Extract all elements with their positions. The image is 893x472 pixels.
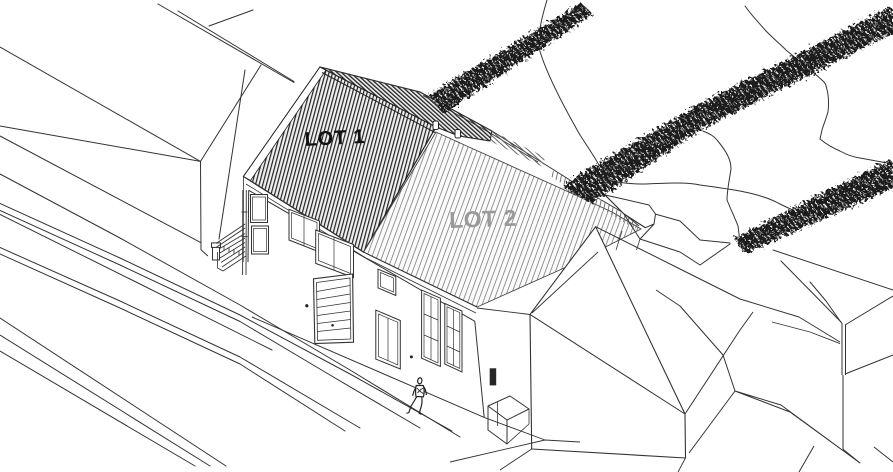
svg-text:LOT 1: LOT 1 (304, 126, 366, 151)
svg-text:LOT 2: LOT 2 (449, 205, 518, 233)
